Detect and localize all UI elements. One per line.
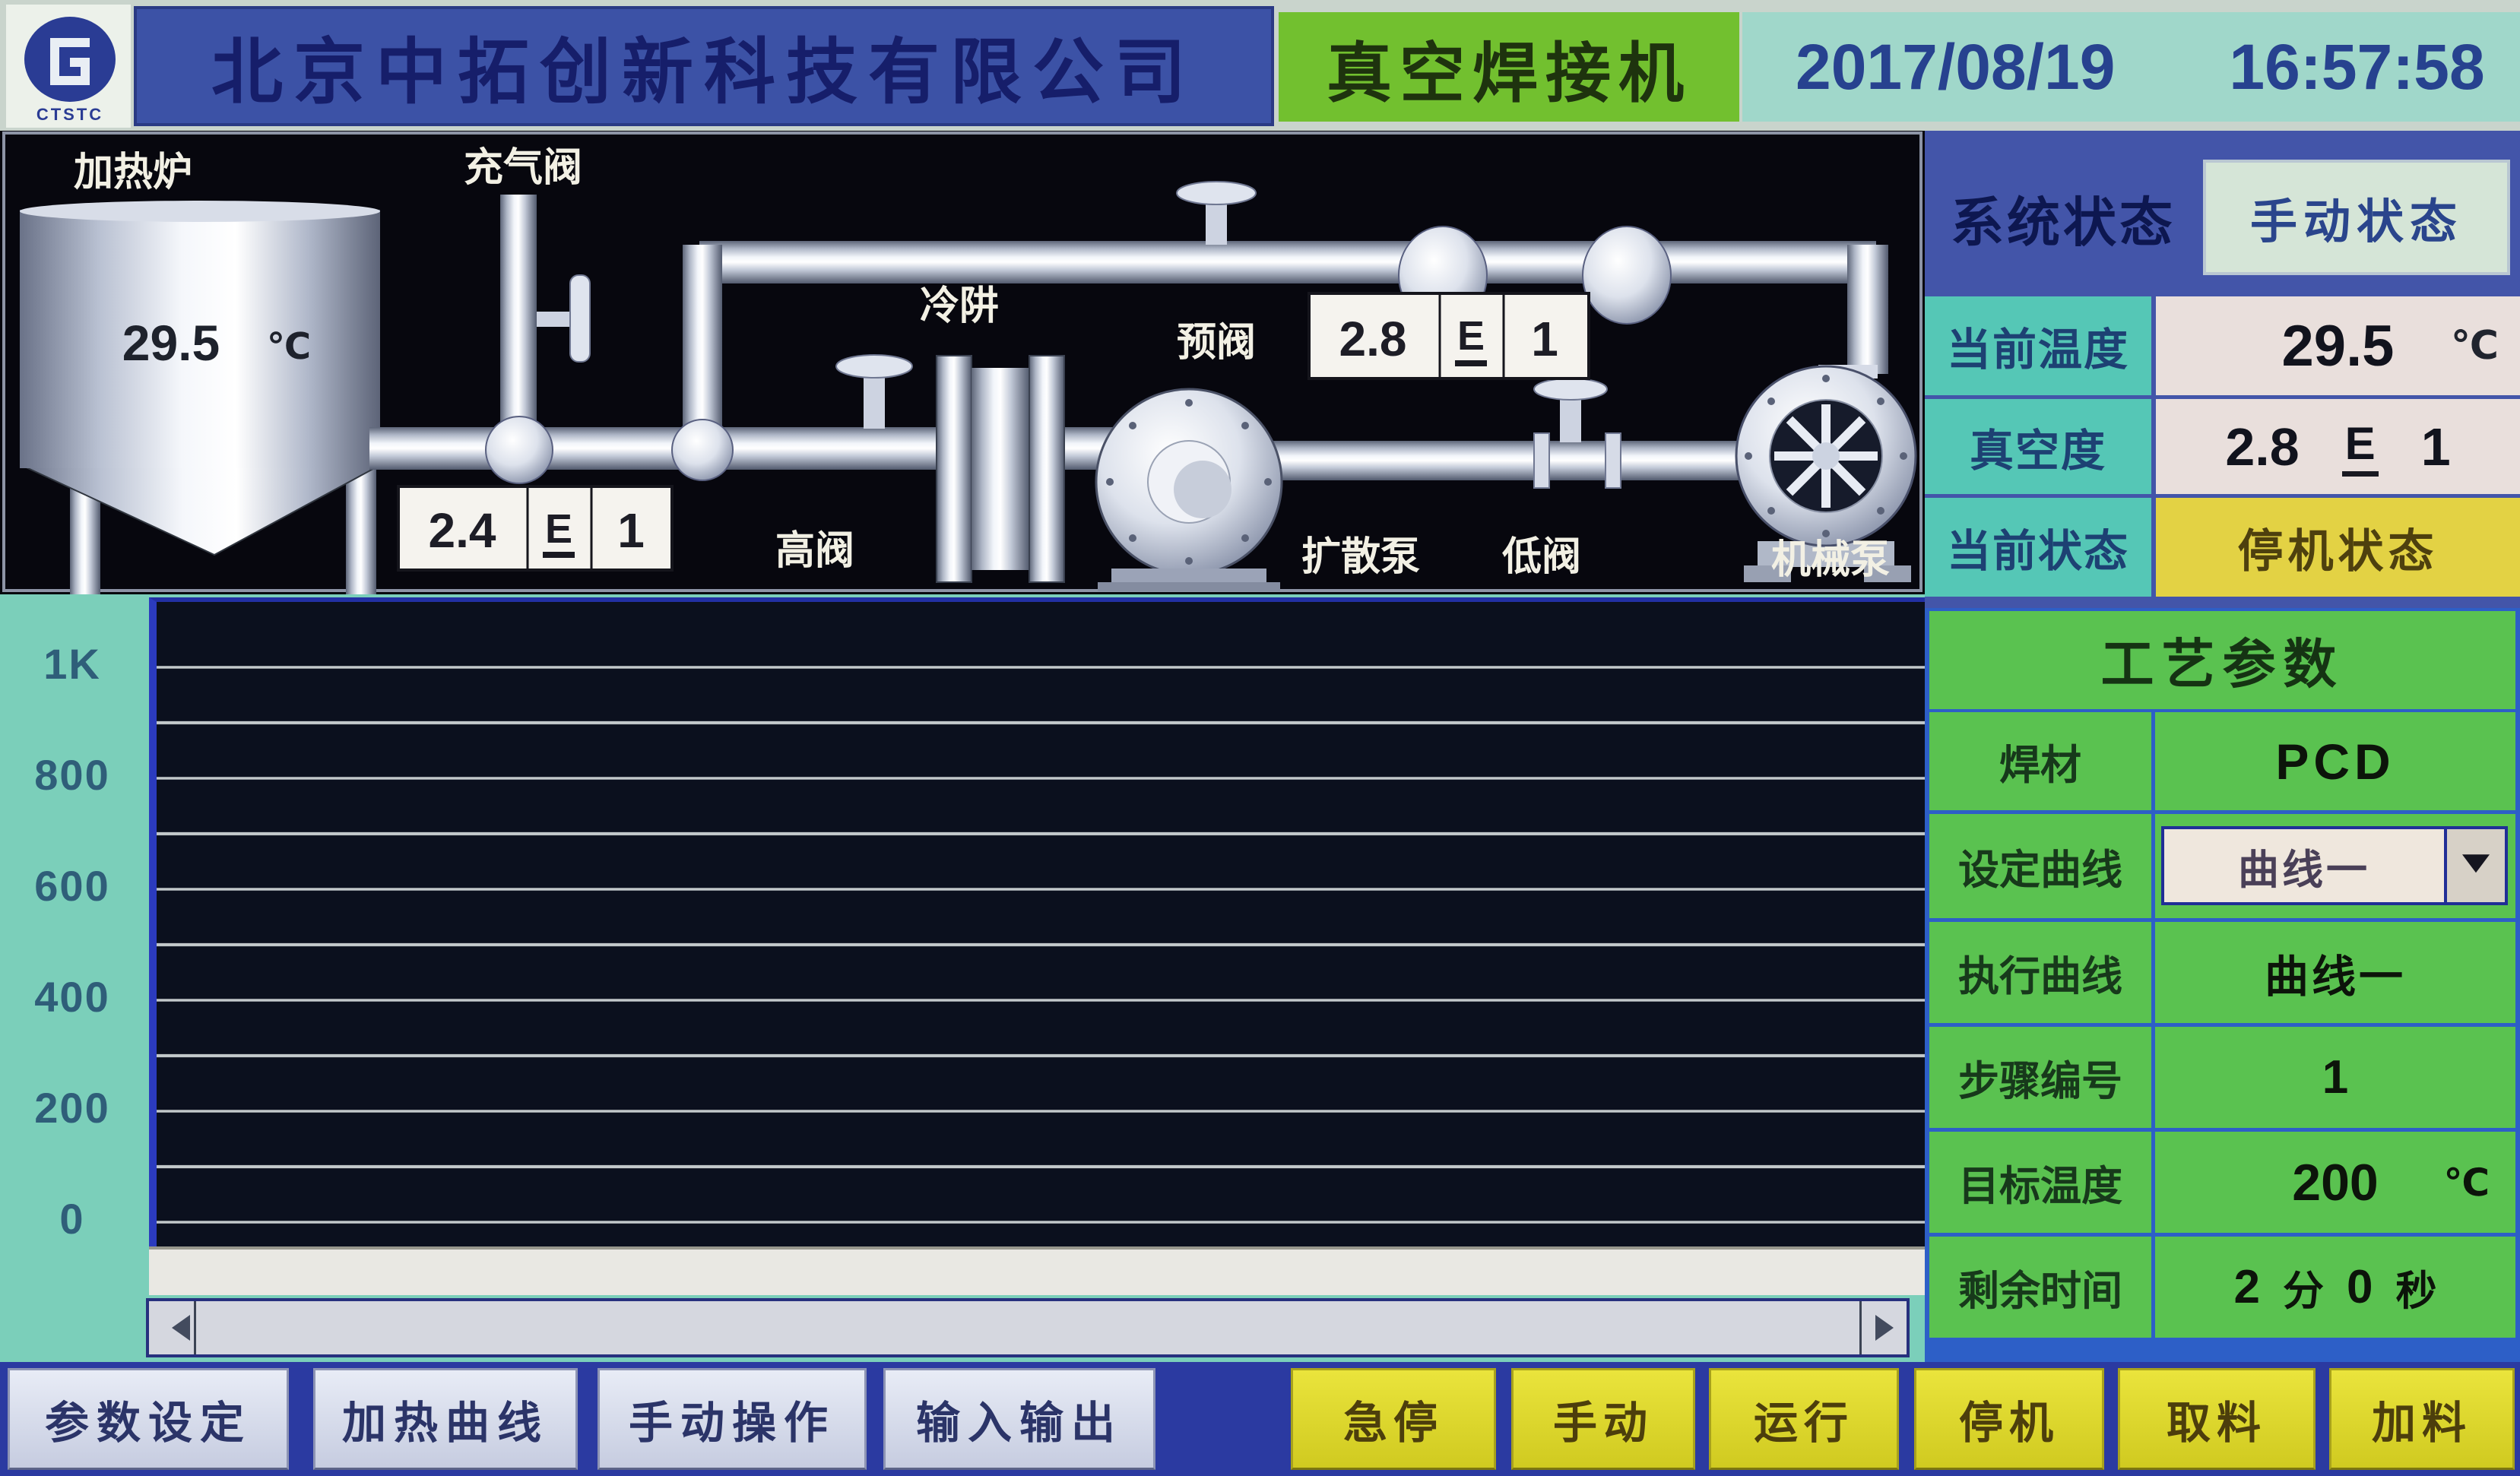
scrollbar-left-arrow[interactable] <box>149 1301 196 1354</box>
nav-button-manual-operation[interactable]: 手动操作 <box>598 1368 867 1470</box>
current-temp-unit: ℃ <box>2451 323 2499 369</box>
nav-button-input-output[interactable]: 输入输出 <box>883 1368 1155 1470</box>
target-temp-value: 200 <box>2292 1153 2378 1212</box>
gauge-pre-e: E <box>1457 313 1485 359</box>
current-state-label: 当前状态 <box>1925 498 2151 597</box>
weld-material-value-cell: PCD <box>2155 712 2515 810</box>
process-parameters-panel: 工艺参数 焊材 PCD 设定曲线 曲线一 执行曲线 曲线一 步骤编号 1 目标温… <box>1925 608 2520 1362</box>
action-button-emergency-stop[interactable]: 急停 <box>1291 1368 1496 1470</box>
gauge-high-exponent: 1 <box>617 503 645 558</box>
vacuum-gauge-pre-display: 2.8 E 1 <box>1309 293 1589 379</box>
pre-valve-label: 预阀 <box>1177 321 1256 365</box>
exec-curve-value-cell: 曲线一 <box>2155 922 2515 1023</box>
weld-material-value: PCD <box>2275 733 2395 790</box>
remaining-time-label: 剩余时间 <box>1929 1237 2151 1338</box>
system-status-label: 系统状态 <box>1934 182 2192 254</box>
logo-text: CTSTC <box>36 105 103 124</box>
mechanical-pump-label: 机械泵 <box>1771 538 1890 582</box>
pipe-tee-ball-riser <box>672 420 733 480</box>
charge-valve-label: 充气阀 <box>464 146 582 190</box>
company-name: 北京中拓创新科技有限公司 <box>134 6 1274 126</box>
step-number-label: 步骤编号 <box>1929 1027 2151 1128</box>
current-temp-value: 29.5 <box>2282 313 2395 379</box>
left-triangle-icon <box>159 1315 190 1341</box>
remaining-time-value-cell: 2 分 0 秒 <box>2155 1237 2515 1338</box>
set-curve-selected: 曲线一 <box>2164 829 2444 902</box>
nav-button-heating-curve[interactable]: 加热曲线 <box>313 1368 578 1470</box>
current-state-value: 停机状态 <box>2156 498 2520 597</box>
action-button-manual[interactable]: 手动 <box>1511 1368 1695 1470</box>
piping-diagram-svg: 29.5 ℃ <box>0 131 1925 594</box>
action-button-unload[interactable]: 取料 <box>2118 1368 2316 1470</box>
cold-trap-label: 冷阱 <box>920 284 999 328</box>
gauge-high-mantissa: 2.4 <box>429 503 496 558</box>
y-axis-tick: 0 <box>0 1194 144 1247</box>
company-logo: CTSTC <box>6 5 131 128</box>
temperature-trend-chart: 1K 800 600 400 200 0 <box>0 594 1925 1362</box>
system-status-value: 手动状态 <box>2203 160 2510 275</box>
high-valve-label: 高阀 <box>775 529 854 573</box>
diffusion-pump-label: 扩散泵 <box>1301 535 1420 579</box>
header-bar: CTSTC 北京中拓创新科技有限公司 真空焊接机 2017/08/19 16:5… <box>0 0 2520 131</box>
set-curve-dropdown[interactable]: 曲线一 <box>2161 826 2508 905</box>
action-button-stop[interactable]: 停机 <box>1914 1368 2104 1470</box>
vacuum-row: 真空度 2.8 E 1 <box>1925 399 2520 494</box>
action-button-load[interactable]: 加料 <box>2329 1368 2515 1470</box>
date-display: 2017/08/19 <box>1796 30 2115 104</box>
remaining-seconds-unit: 秒 <box>2395 1257 2436 1317</box>
exec-curve-label: 执行曲线 <box>1929 922 2151 1023</box>
set-curve-value-cell: 曲线一 <box>2155 814 2515 918</box>
top-pipe-valve-2 <box>1583 226 1671 324</box>
pipe-tee-ball-left <box>486 417 553 483</box>
current-temp-label: 当前温度 <box>1925 296 2151 395</box>
current-temp-value-cell: 29.5 ℃ <box>2156 296 2520 395</box>
weld-material-label: 焊材 <box>1929 712 2151 810</box>
page-title: 真空焊接机 <box>1279 12 1739 122</box>
chart-x-axis-band <box>149 1246 1925 1295</box>
target-temp-unit: ℃ <box>2443 1161 2490 1205</box>
y-axis-tick: 600 <box>0 861 144 914</box>
nav-button-param-setting[interactable]: 参数设定 <box>8 1368 289 1470</box>
remaining-seconds: 0 <box>2347 1260 2373 1314</box>
bottom-toolbar: 参数设定 加热曲线 手动操作 输入输出 急停 手动 运行 停机 取料 加料 <box>0 1362 2520 1476</box>
furnace-label: 加热炉 <box>74 150 192 195</box>
step-number-value: 1 <box>2322 1050 2348 1104</box>
process-panel-title: 工艺参数 <box>1929 611 2515 709</box>
current-temp-row: 当前温度 29.5 ℃ <box>1925 296 2520 395</box>
chart-scrollbar[interactable] <box>146 1298 1910 1357</box>
y-axis-tick: 800 <box>0 750 144 803</box>
current-state-row: 当前状态 停机状态 <box>1925 498 2520 597</box>
furnace-temp-unit: ℃ <box>267 327 311 367</box>
chevron-down-icon[interactable] <box>2444 829 2505 902</box>
gauge-high-e: E <box>545 506 572 552</box>
remaining-minutes-unit: 分 <box>2283 1257 2324 1317</box>
vacuum-value-cell: 2.8 E 1 <box>2156 399 2520 494</box>
vacuum-gauge-high-display: 2.4 E 1 <box>398 486 672 570</box>
vacuum-exponent: 1 <box>2421 417 2451 477</box>
target-temp-label: 目标温度 <box>1929 1132 2151 1233</box>
remaining-minutes: 2 <box>2234 1260 2260 1314</box>
target-temp-value-cell: 200 ℃ <box>2155 1132 2515 1233</box>
action-button-run[interactable]: 运行 <box>1709 1368 1899 1470</box>
time-display: 16:57:58 <box>2229 30 2484 104</box>
furnace-temp-value: 29.5 <box>122 315 220 371</box>
vacuum-mantissa: 2.8 <box>2225 417 2299 477</box>
exec-curve-value: 曲线一 <box>2265 941 2406 1005</box>
low-valve-label: 低阀 <box>1502 535 1581 579</box>
set-curve-label: 设定曲线 <box>1929 814 2151 918</box>
status-panel: 系统状态 手动状态 当前温度 29.5 ℃ 真空度 2.8 E 1 当前状态 停… <box>1925 131 2520 1362</box>
scrollbar-right-arrow[interactable] <box>1859 1301 1907 1354</box>
y-axis-tick: 400 <box>0 972 144 1025</box>
y-axis-tick: 200 <box>0 1083 144 1136</box>
right-triangle-icon <box>1875 1315 1907 1341</box>
vacuum-label: 真空度 <box>1925 399 2151 494</box>
hmi-screen: CTSTC 北京中拓创新科技有限公司 真空焊接机 2017/08/19 16:5… <box>0 0 2520 1476</box>
vacuum-e: E <box>2342 417 2379 477</box>
step-number-value-cell: 1 <box>2155 1027 2515 1128</box>
chart-plot-area <box>149 597 1925 1246</box>
piping-diagram: 29.5 ℃ <box>0 131 1925 594</box>
cold-trap <box>937 356 1064 582</box>
gauge-pre-mantissa: 2.8 <box>1339 312 1407 366</box>
y-axis-tick: 1K <box>0 639 144 692</box>
gauge-pre-exponent: 1 <box>1531 312 1558 366</box>
datetime-display: 2017/08/19 16:57:58 <box>1742 12 2520 122</box>
